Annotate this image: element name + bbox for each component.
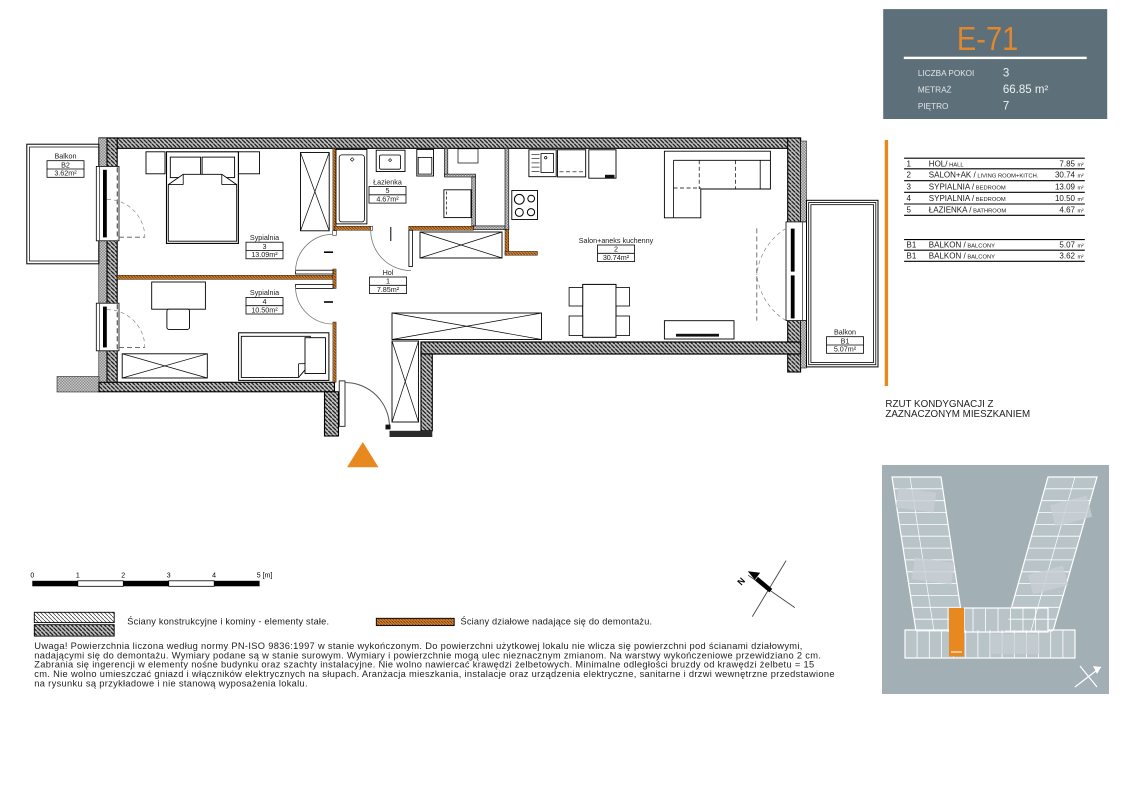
svg-text:1: 1	[907, 159, 912, 168]
svg-text:3.62m²: 3.62m²	[54, 169, 77, 178]
svg-text:m²: m²	[1078, 162, 1084, 168]
svg-text:10.50: 10.50	[1055, 194, 1076, 203]
svg-text:13.09: 13.09	[1055, 182, 1076, 191]
svg-text:BALKON / BALCONY: BALKON / BALCONY	[929, 241, 995, 250]
svg-text:m²: m²	[1078, 255, 1084, 261]
svg-text:3: 3	[907, 182, 912, 191]
svg-text:7: 7	[1003, 101, 1009, 113]
svg-text:Łazienka: Łazienka	[373, 177, 402, 186]
svg-text:5 [m]: 5 [m]	[257, 573, 273, 580]
svg-text:SYPIALNIA / BEDROOM: SYPIALNIA / BEDROOM	[929, 182, 1006, 191]
svg-text:Balkon: Balkon	[834, 328, 856, 337]
svg-text:PIĘTRO: PIĘTRO	[918, 102, 948, 111]
svg-text:13.09m²: 13.09m²	[251, 250, 278, 259]
svg-text:BALKON / BALCONY: BALKON / BALCONY	[929, 252, 995, 261]
svg-text:1: 1	[76, 573, 80, 580]
svg-text:m²: m²	[1078, 244, 1084, 250]
svg-text:Sypialnia: Sypialnia	[250, 233, 279, 242]
svg-text:m²: m²	[1078, 185, 1084, 191]
svg-text:4.67: 4.67	[1059, 206, 1075, 215]
svg-text:Ściany działowe nadające się d: Ściany działowe nadające się do demontaż…	[461, 616, 653, 627]
svg-text:LICZBA POKOI: LICZBA POKOI	[918, 69, 974, 78]
svg-text:30.74: 30.74	[1055, 171, 1076, 180]
svg-text:METRAŻ: METRAŻ	[918, 85, 952, 95]
svg-text:ZAZNACZONYM MIESZKANIEM: ZAZNACZONYM MIESZKANIEM	[885, 409, 1030, 420]
svg-text:SALON+AK / LIVING ROOM+KITCH.: SALON+AK / LIVING ROOM+KITCH.	[929, 171, 1039, 180]
svg-text:2: 2	[121, 573, 125, 580]
svg-text:N: N	[735, 576, 747, 588]
svg-text:na rysunku są przykładowe i ni: na rysunku są przykładowe i nie stanową …	[34, 678, 308, 688]
svg-text:m²: m²	[1078, 209, 1084, 215]
svg-text:7.85m²: 7.85m²	[377, 285, 400, 294]
svg-text:0: 0	[30, 573, 34, 580]
svg-text:3: 3	[1003, 67, 1009, 79]
svg-text:Ściany konstrukcyjne i kominy: Ściany konstrukcyjne i kominy - elementy…	[127, 616, 329, 627]
svg-text:4.67m²: 4.67m²	[376, 195, 399, 204]
svg-text:5: 5	[907, 206, 912, 215]
svg-text:5.07m²: 5.07m²	[834, 345, 857, 354]
svg-text:2: 2	[907, 171, 912, 180]
svg-text:7.85: 7.85	[1059, 159, 1075, 168]
svg-text:ŁAZIENKA / BATHROOM: ŁAZIENKA / BATHROOM	[929, 206, 1007, 215]
svg-text:m²: m²	[1078, 197, 1084, 203]
svg-text:3.62: 3.62	[1059, 252, 1075, 261]
svg-text:10.50m²: 10.50m²	[251, 305, 278, 314]
svg-text:E-71: E-71	[957, 20, 1018, 57]
svg-text:3: 3	[167, 573, 171, 580]
svg-text:Balkon: Balkon	[55, 152, 77, 161]
svg-text:B1: B1	[907, 241, 917, 250]
svg-text:30.74m²: 30.74m²	[603, 253, 630, 262]
svg-text:Sypialnia: Sypialnia	[250, 288, 279, 297]
svg-text:Hol: Hol	[383, 268, 394, 277]
svg-text:4: 4	[907, 194, 912, 203]
svg-text:HOL/ HALL: HOL/ HALL	[929, 159, 965, 168]
svg-text:66.85 m²: 66.85 m²	[1003, 84, 1049, 96]
svg-text:B1: B1	[907, 252, 917, 261]
svg-text:5.07: 5.07	[1059, 241, 1075, 250]
svg-text:m²: m²	[1078, 174, 1084, 180]
svg-text:Salon+aneks kuchenny: Salon+aneks kuchenny	[579, 236, 654, 245]
svg-text:4: 4	[212, 573, 216, 580]
svg-text:SYPIALNIA / BEDROOM: SYPIALNIA / BEDROOM	[929, 194, 1006, 203]
